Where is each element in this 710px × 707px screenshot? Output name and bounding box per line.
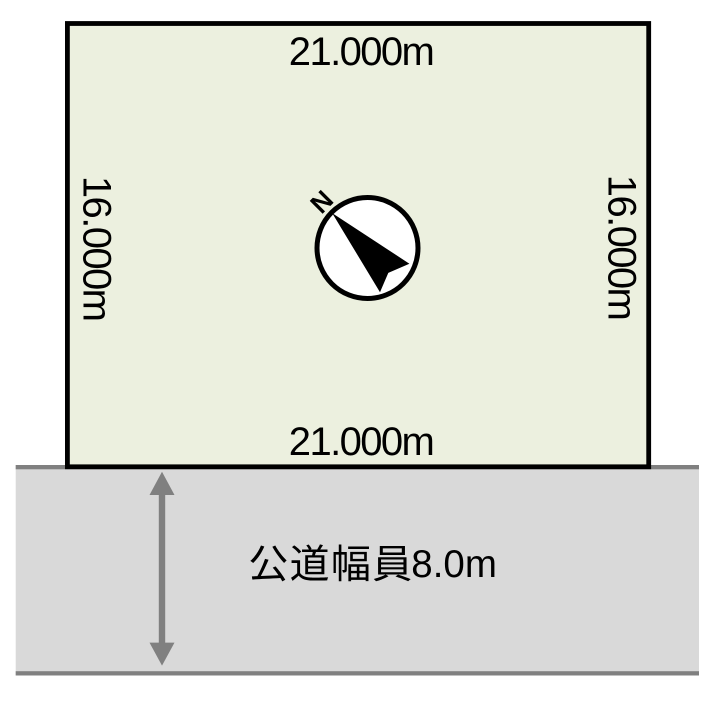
svg-text:16.000m: 16.000m xyxy=(599,175,643,319)
svg-text:16.000m: 16.000m xyxy=(75,176,119,320)
svg-text:8.0m: 8.0m xyxy=(411,543,497,586)
svg-text:21.000m: 21.000m xyxy=(289,420,433,464)
svg-text:21.000m: 21.000m xyxy=(289,30,433,74)
